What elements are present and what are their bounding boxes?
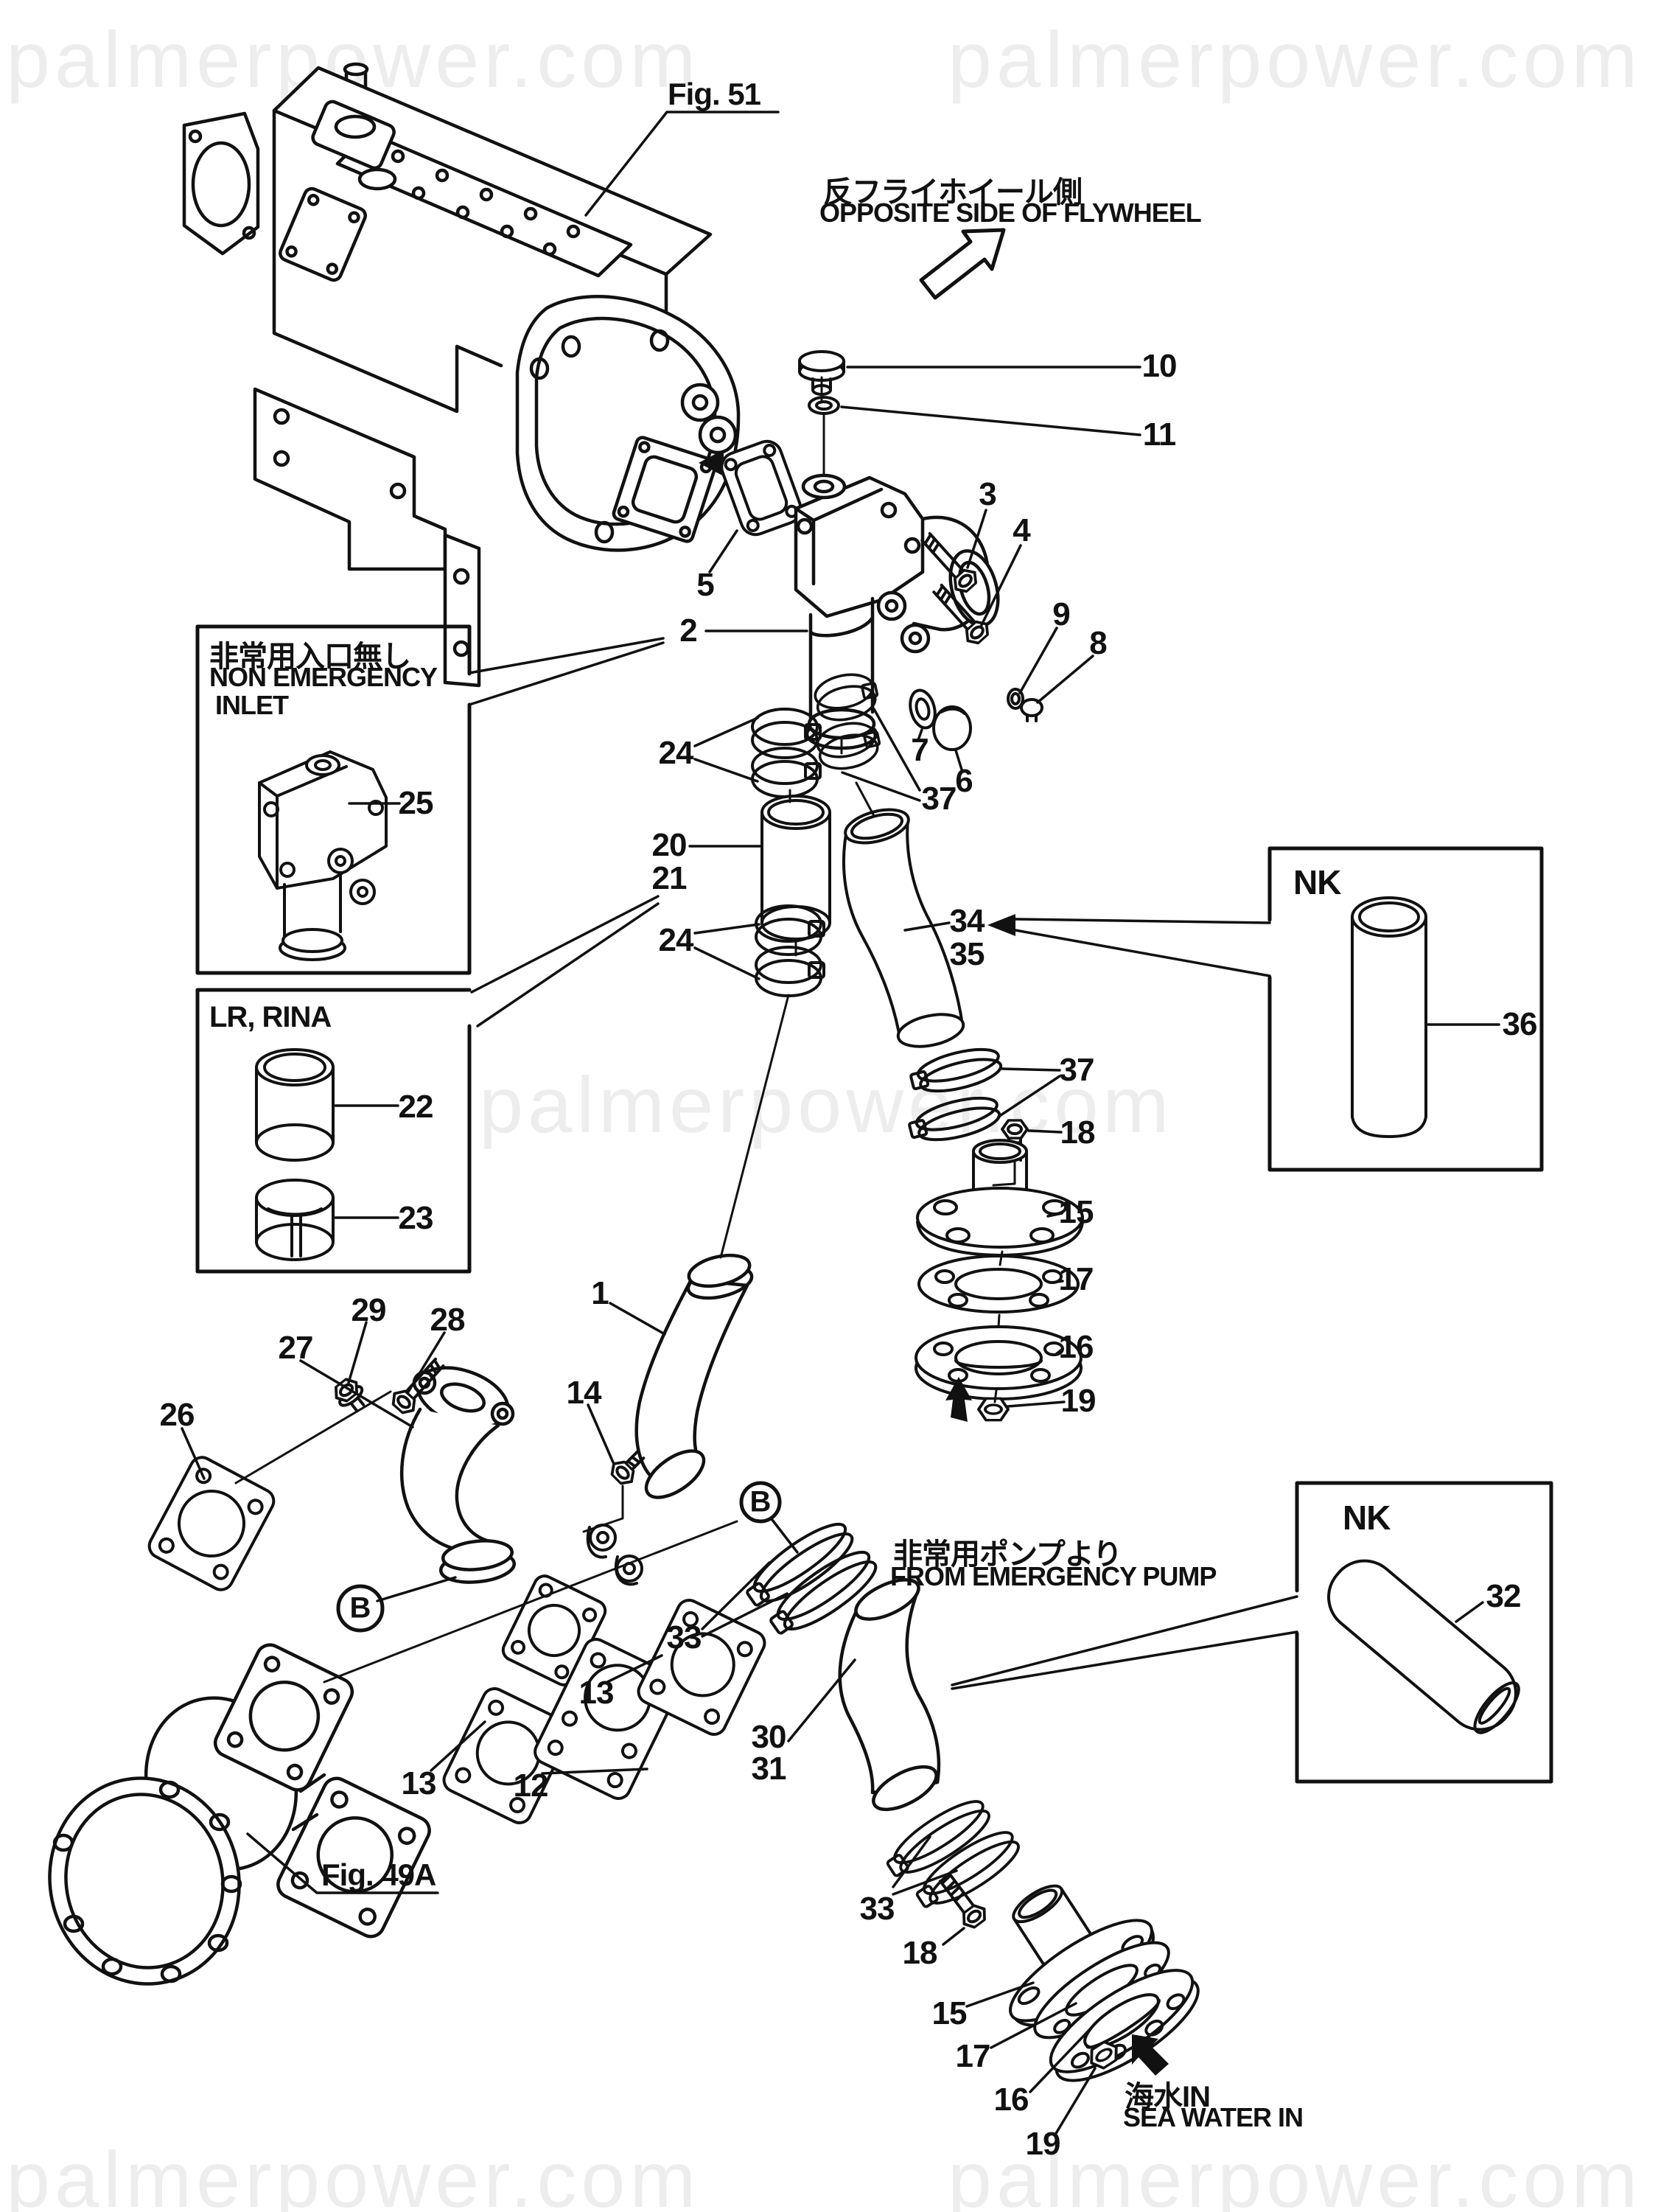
part-1-pipe (637, 1250, 755, 1507)
callout-23: 23 (399, 1200, 433, 1237)
callout-2: 2 (679, 613, 696, 649)
callout-24: 24 (659, 922, 693, 959)
part-6-cap (934, 707, 971, 750)
part-5-gasket (718, 437, 805, 539)
part-37-clamps-lower (906, 1043, 1004, 1148)
flywheel-direction-arrow-icon (921, 230, 1004, 298)
nk-leader-arrowhead (987, 914, 1015, 936)
callout-26: 26 (160, 1397, 195, 1434)
callout-7: 7 (911, 732, 928, 769)
callout-37: 37 (1060, 1052, 1094, 1089)
callout-16: 16 (994, 2082, 1029, 2118)
parts-diagram-page: palmerpower.com palmerpower.com palmerpo… (0, 0, 1675, 2212)
callout-33: 33 (860, 1891, 895, 1927)
callout-4: 4 (1013, 512, 1029, 549)
callout-34: 34 (950, 903, 985, 940)
part-15-fitting-upper (917, 1140, 1083, 1255)
part-34-35-hose (842, 803, 966, 1052)
callout-17: 17 (1059, 1261, 1094, 1298)
callout-13: 13 (402, 1765, 436, 1802)
callout-16: 16 (1059, 1329, 1094, 1366)
callout-17: 17 (956, 2038, 990, 2075)
callout-19: 19 (1026, 2126, 1060, 2163)
nk-bottom-title: NK (1343, 1498, 1390, 1538)
fig51-label: Fig. 51 (668, 77, 760, 112)
callout-9: 9 (1052, 596, 1069, 633)
part-17-gasket-upper (919, 1256, 1078, 1312)
callout-8: 8 (1089, 625, 1106, 662)
part-26-gasket (145, 1454, 278, 1594)
lr-rina-title: LR, RINA (209, 1001, 331, 1034)
fig49a-label: Fig. 49A (321, 1857, 436, 1893)
callout-27: 27 (279, 1330, 313, 1367)
callout-18: 18 (1060, 1114, 1095, 1151)
callout-19: 19 (1061, 1383, 1096, 1420)
sea-water-in-label-en: SEA WATER IN (1123, 2102, 1303, 2133)
callout-28: 28 (430, 1302, 465, 1339)
callout-32: 32 (1486, 1578, 1521, 1615)
part-32-tube (1315, 1547, 1530, 1743)
callout-13: 13 (579, 1675, 614, 1712)
callout-11: 11 (1143, 416, 1176, 453)
part-11-oring (809, 397, 839, 414)
callout-18: 18 (903, 1935, 937, 1972)
callout-29: 29 (352, 1292, 386, 1329)
part-25-fitting (259, 752, 386, 960)
non-emergency-title-en1: NON EMERGENCY (209, 662, 437, 693)
sea-water-arrow-icon (1132, 2034, 1169, 2076)
part-30-31-hose (840, 1571, 943, 1818)
view-b-marker: B (750, 1486, 772, 1519)
part-36-tube (1352, 898, 1426, 1137)
opposite-side-label-en: OPPOSITE SIDE OF FLYWHEEL (819, 198, 1201, 228)
from-emergency-pump-label-en: FROM EMERGENCY PUMP (890, 1561, 1216, 1592)
callout-24: 24 (659, 735, 693, 772)
nk-top-title: NK (1293, 862, 1340, 902)
callout-14: 14 (567, 1375, 601, 1412)
callout-20: 20 (652, 827, 687, 864)
sea-water-pump (31, 1641, 434, 2002)
part-16-flange-upper (916, 1327, 1081, 1399)
callout-21: 21 (652, 860, 687, 897)
diagram-lineart (0, 0, 1675, 2212)
callout-33: 33 (667, 1619, 702, 1656)
callout-31: 31 (752, 1751, 786, 1787)
callout-12: 12 (514, 1768, 548, 1804)
part-22-sleeve (256, 1050, 333, 1160)
callout-36: 36 (1503, 1006, 1537, 1043)
callout-10: 10 (1142, 348, 1177, 385)
callout-15: 15 (932, 1995, 967, 2032)
part-19-nut-upper (979, 1398, 1008, 1420)
callout-3: 3 (979, 476, 996, 513)
callout-6: 6 (955, 763, 972, 800)
view-b-marker: B (350, 1592, 371, 1625)
non-emergency-title-en2: INLET (215, 690, 288, 721)
callout-25: 25 (399, 785, 433, 822)
callout-15: 15 (1059, 1194, 1094, 1231)
callout-35: 35 (950, 936, 985, 973)
callout-37: 37 (922, 781, 957, 817)
engine-block (184, 64, 738, 685)
callout-22: 22 (399, 1089, 433, 1126)
part-23-split-ring (256, 1180, 333, 1260)
callout-1: 1 (591, 1275, 608, 1312)
callout-5: 5 (696, 567, 713, 604)
